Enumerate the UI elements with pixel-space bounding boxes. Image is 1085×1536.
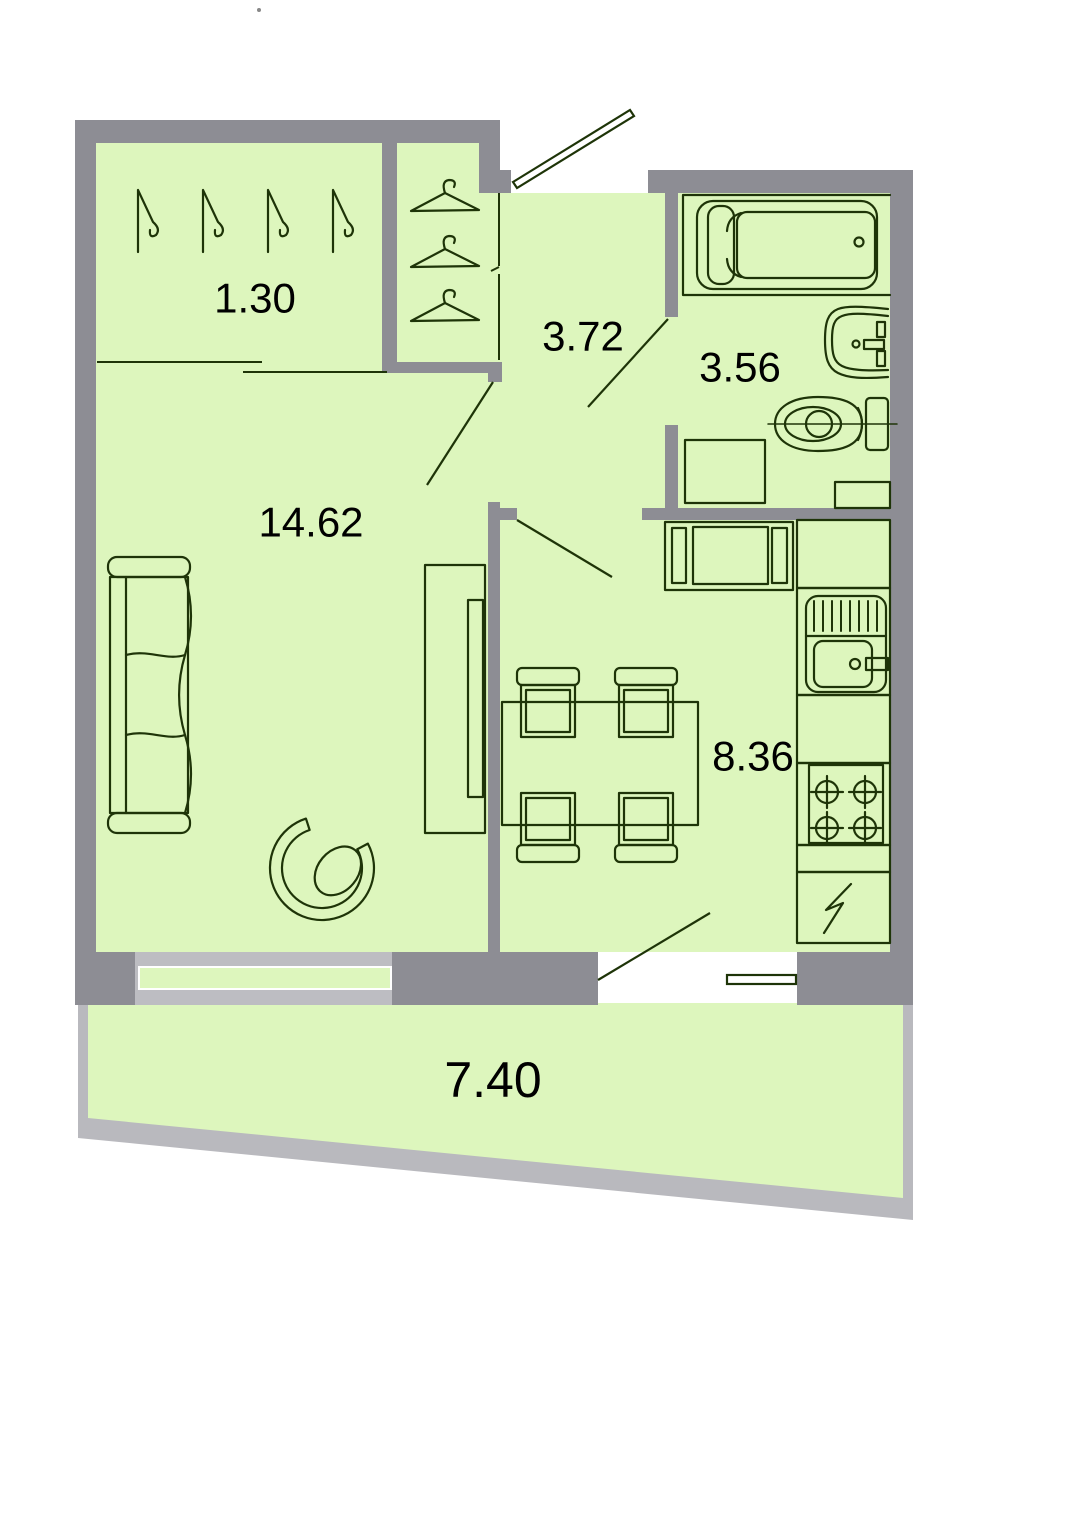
wall-entry-jamb [490, 170, 511, 193]
wall-right [890, 170, 913, 1005]
kitchen-area-label: 8.36 [712, 733, 794, 780]
window-glass [140, 968, 390, 988]
window [135, 952, 392, 1005]
wall-top-right [648, 170, 913, 193]
wall-closet-divider [382, 143, 397, 362]
wall-bath-left-upper [665, 193, 678, 317]
entrance-door-leaf [513, 110, 634, 188]
balcony [78, 1003, 913, 1220]
wall-bottom-mid [392, 952, 598, 1005]
wall-corner-block [488, 373, 502, 382]
balcony-area-label: 7.40 [444, 1052, 541, 1108]
balcony-door-threshold [727, 975, 796, 984]
closet-area-label: 1.30 [214, 275, 296, 322]
wall-bath-left-lower [665, 425, 678, 508]
wall-kitchen-jamb [500, 508, 517, 520]
living-room-area-label: 14.62 [258, 499, 363, 546]
floor-plan: 1.30 3.72 3.56 14.62 8.36 7.40 [0, 0, 1085, 1536]
stray-dot [257, 8, 261, 12]
wall-top-left [75, 120, 500, 143]
wall-living-kitchen [488, 502, 500, 952]
wall-under-wardrobe [382, 362, 502, 373]
hallway-area-label: 3.72 [542, 313, 624, 360]
wall-left [75, 120, 96, 1005]
bathroom-area-label: 3.56 [699, 344, 781, 391]
wall-bath-bottom [642, 508, 890, 520]
floor-left-rooms [96, 142, 498, 952]
wall-bottom-right [797, 952, 913, 1005]
wall-bottom-left [75, 952, 135, 1005]
